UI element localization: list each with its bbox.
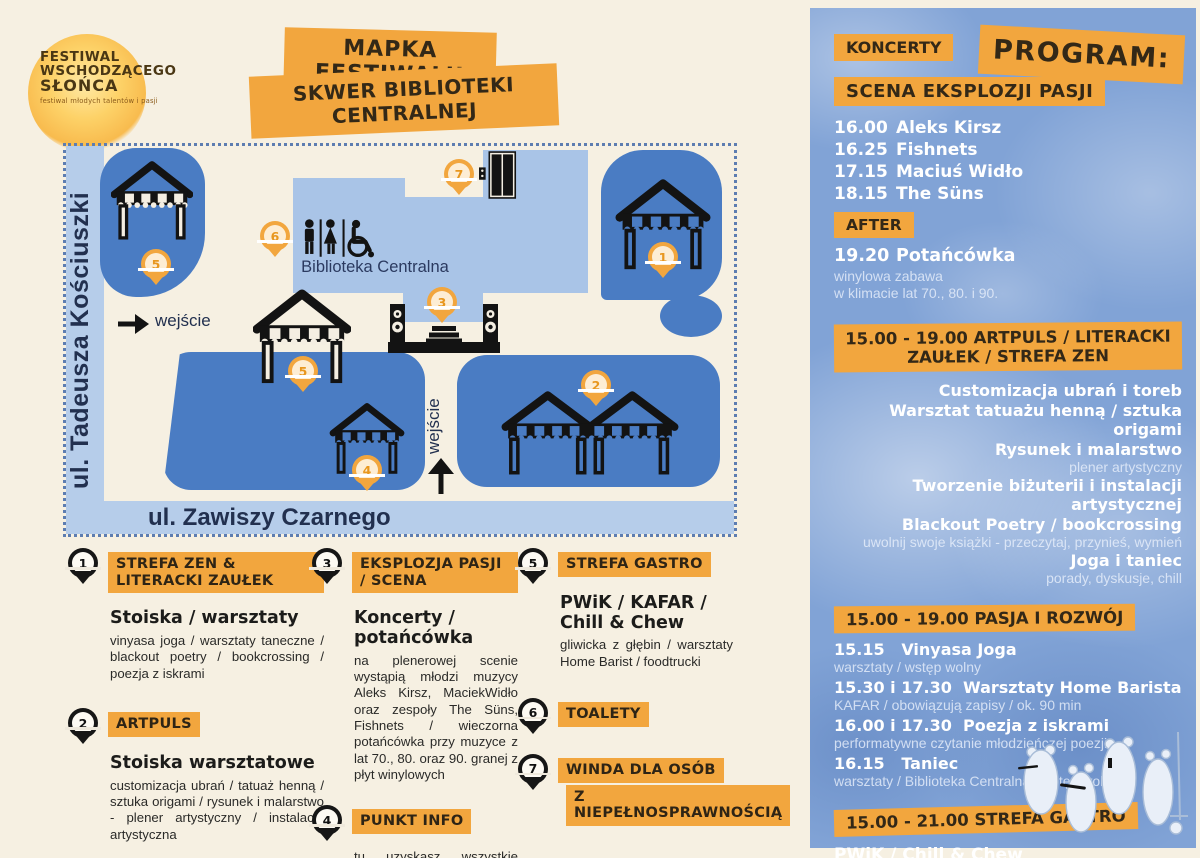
bears-doodle	[1010, 730, 1190, 838]
legend-banner-5: STREFA GASTRO	[558, 552, 711, 577]
legend-desc-4: tu uzyskasz wszystkie niezbędne informac…	[354, 849, 518, 858]
logo-line1: FESTIWAL	[40, 50, 160, 64]
legend-item-5: 5 STREFA GASTRO	[518, 548, 733, 578]
legend-pin-7: 7	[518, 754, 548, 784]
street-bottom-strip: ul. Zawiszy Czarnego	[104, 501, 734, 534]
legend-item-6: 6 TOALETY	[518, 698, 733, 728]
entrance-bottom-label: wejście	[424, 388, 444, 454]
program-panel: PROGRAM: KONCERTY SCENA EKSPLOZJI PASJI …	[810, 8, 1196, 848]
legend-pin-1: 1	[68, 548, 98, 578]
legend-desc-2: customizacja ubrań / tatuaż henną / sztu…	[110, 778, 324, 843]
street-left-label: ul. Tadeusza Kościuszki	[66, 146, 104, 534]
legend-pin-2: 2	[68, 708, 98, 738]
legend-pin-4: 4	[312, 805, 342, 835]
poster-subtitle: SKWER BIBLIOTEKI CENTRALNEJ	[249, 63, 559, 138]
map-pin-5b: 5	[288, 356, 318, 386]
tent-icon	[111, 156, 193, 246]
map-pin-6: 6	[260, 221, 290, 251]
concert-row: 18.15The Süns	[834, 184, 1182, 204]
legend-desc-1: vinyasa joga / warsztaty taneczne / blac…	[110, 633, 324, 682]
concert-row: 17.15Maciuś Widło	[834, 162, 1182, 182]
activity: Tworzenie biżuterii i instalacji artysty…	[834, 476, 1182, 515]
elevator-icon	[479, 150, 517, 200]
after-event: 19.20 Potańcówka winylowa zabawa w klima…	[834, 246, 1182, 301]
map-pin-7: 7	[444, 159, 474, 189]
artpuls-banner: 15.00 - 19.00 ARTPULS / LITERACKI ZAUŁEK…	[834, 322, 1182, 373]
legend-item-2: 2 ARTPULS	[68, 708, 324, 738]
activity: Blackout Poetry / bookcrossing	[834, 515, 1182, 535]
map-pin-3: 3	[427, 287, 457, 317]
scena-banner: SCENA EKSPLOZJI PASJI	[834, 77, 1105, 106]
street-left-strip: ul. Tadeusza Kościuszki	[66, 146, 104, 534]
after-row: 19.20 Potańcówka	[834, 246, 1182, 266]
zone-blob-ellipse	[660, 295, 722, 337]
concert-row: 16.25Fishnets	[834, 140, 1182, 160]
after-desc2: w klimacie lat 70., 80. i 90.	[834, 285, 1182, 302]
pasja-row: 15.30 i 17.30 Warsztaty Home Barista KAF…	[834, 678, 1182, 714]
legend-banner-2: ARTPULS	[108, 712, 200, 737]
activity: Joga i taniec	[834, 551, 1182, 571]
legend-heading-2: Stoiska warsztatowe	[110, 754, 324, 774]
pasja-row: 15.15 Vinyasa Joga warsztaty / wstęp wol…	[834, 640, 1182, 676]
pasja-banner: 15.00 - 19.00 PASJA I ROZWÓJ	[834, 603, 1136, 633]
map-pin-4: 4	[352, 455, 382, 485]
entrance-arrow-right-icon	[116, 312, 150, 336]
map-pin-2: 2	[581, 370, 611, 400]
activity-note: plener artystyczny	[834, 459, 1182, 476]
activity-note: uwolnij swoje książki - przeczytaj, przy…	[834, 534, 1182, 551]
festival-logo: FESTIWAL WSCHODZĄCEGO SŁOŃCA festiwal mł…	[40, 50, 160, 105]
after-banner: AFTER	[834, 212, 914, 238]
legend-column-3: 5 STREFA GASTRO PWiK / KAFAR / Chill & C…	[518, 548, 733, 826]
gastro-vendors: PWiK / Chill & Chew	[834, 845, 1182, 858]
library-building	[293, 178, 405, 198]
entrance-arrow-up-icon	[426, 458, 456, 496]
activity: Customizacja ubrań i toreb	[834, 381, 1182, 401]
activity: Rysunek i malarstwo	[834, 440, 1182, 460]
gastro-info: PWiK / Chill & Chew gliwicka z głębin / …	[834, 845, 1182, 858]
legend-desc-3: na plenerowej scenie wystąpią młodzi muz…	[354, 653, 518, 784]
legend-banner-6: TOALETY	[558, 702, 649, 727]
logo-subtitle: festiwal młodych talentów i pasji	[40, 98, 160, 105]
legend-banner-3: EKSPLOZJA PASJI / SCENA	[352, 552, 518, 593]
after-desc1: winylowa zabawa	[834, 268, 1182, 285]
entrance-left-label: wejście	[155, 311, 211, 331]
legend-heading-3: Koncerty / potańcówka	[354, 609, 518, 648]
koncerty-banner: KONCERTY	[834, 34, 953, 61]
legend-heading-5: PWiK / KAFAR / Chill & Chew	[560, 594, 733, 633]
legend-item-3: 3 EKSPLOZJA PASJI / SCENA	[312, 548, 518, 593]
concert-row: 16.00Aleks Kirsz	[834, 118, 1182, 138]
legend-item-1: 1 STREFA ZEN & LITERACKI ZAUŁEK	[68, 548, 324, 593]
legend-banner-7b: Z NIEPEŁNOSPRAWNOŚCIĄ	[566, 785, 790, 826]
legend-item-7: 7 WINDA DLA OSÓB Z NIEPEŁNOSPRAWNOŚCIĄ	[518, 754, 733, 826]
activity: Warsztat tatuażu henną / sztuka origami	[834, 401, 1182, 440]
legend-banner-1: STREFA ZEN & LITERACKI ZAUŁEK	[108, 552, 324, 593]
legend-column-1: 1 STREFA ZEN & LITERACKI ZAUŁEK Stoiska …	[68, 548, 324, 843]
legend-pin-6: 6	[518, 698, 548, 728]
street-bottom-label: ul. Zawiszy Czarnego	[104, 501, 734, 532]
legend-pin-5: 5	[518, 548, 548, 578]
legend-pin-3: 3	[312, 548, 342, 578]
legend-banner-4: PUNKT INFO	[352, 809, 471, 834]
legend-heading-1: Stoiska / warsztaty	[110, 609, 324, 629]
festival-poster: FESTIWAL WSCHODZĄCEGO SŁOŃCA festiwal mł…	[0, 0, 1200, 858]
artpuls-activities: Customizacja ubrań i toreb Warsztat tatu…	[834, 381, 1182, 587]
legend-item-4: 4 PUNKT INFO	[312, 805, 518, 835]
festival-map: ul. Tadeusza Kościuszki ul. Zawiszy Czar…	[63, 143, 737, 537]
legend-banner-7: WINDA DLA OSÓB	[558, 758, 724, 783]
activity-note: porady, dyskusje, chill	[834, 570, 1182, 587]
logo-line3: SŁOŃCA	[40, 78, 160, 95]
map-pin-5a: 5	[141, 249, 171, 279]
map-pin-1: 1	[648, 242, 678, 272]
concert-schedule: 16.00Aleks Kirsz 16.25Fishnets 17.15Maci…	[834, 118, 1182, 204]
legend-column-2: 3 EKSPLOZJA PASJI / SCENA Koncerty / pot…	[312, 548, 518, 858]
legend-desc-5: gliwicka z głębin / warsztaty Home Baris…	[560, 637, 733, 670]
restroom-icons	[300, 217, 386, 261]
